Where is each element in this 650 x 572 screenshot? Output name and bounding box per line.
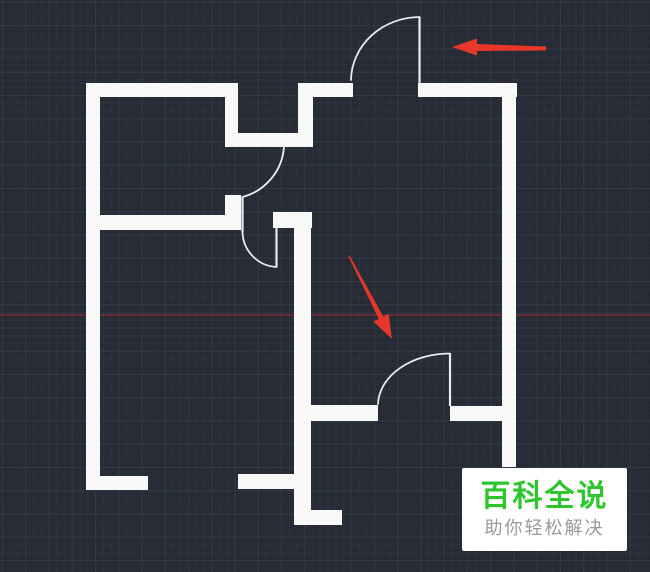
- cad-viewport[interactable]: 百科全说 助你轻松解决: [0, 0, 650, 572]
- door-leaves: [243, 17, 451, 406]
- interior-wall-left: [90, 215, 241, 230]
- bottom-wall-b: [238, 474, 295, 489]
- watermark-title: 百科全说: [481, 481, 609, 513]
- right-wall: [502, 83, 516, 467]
- interior-door-jamb: [225, 195, 241, 230]
- bottom-wall-a: [86, 476, 148, 490]
- watermark-subtitle: 助你轻松解决: [485, 519, 605, 538]
- lower-wall-right: [450, 406, 502, 421]
- central-wall: [294, 212, 311, 525]
- top-wall-b: [298, 83, 353, 97]
- top-wall-a: [86, 83, 238, 97]
- left-wall: [86, 83, 100, 490]
- watermark-badge: 百科全说 助你轻松解决: [462, 468, 627, 551]
- door-a-arc: [243, 147, 285, 197]
- bottom-door-arc: [378, 354, 450, 405]
- lower-wall-left: [311, 405, 378, 421]
- bottom-step-bar: [311, 510, 342, 525]
- arrow-pointing-left-at-top-door: [452, 39, 546, 56]
- door-b-arc: [243, 232, 277, 267]
- arrow-pointing-down-right-at-bottom-door: [348, 256, 392, 339]
- walls: [86, 83, 517, 525]
- top-door-arc: [351, 17, 420, 80]
